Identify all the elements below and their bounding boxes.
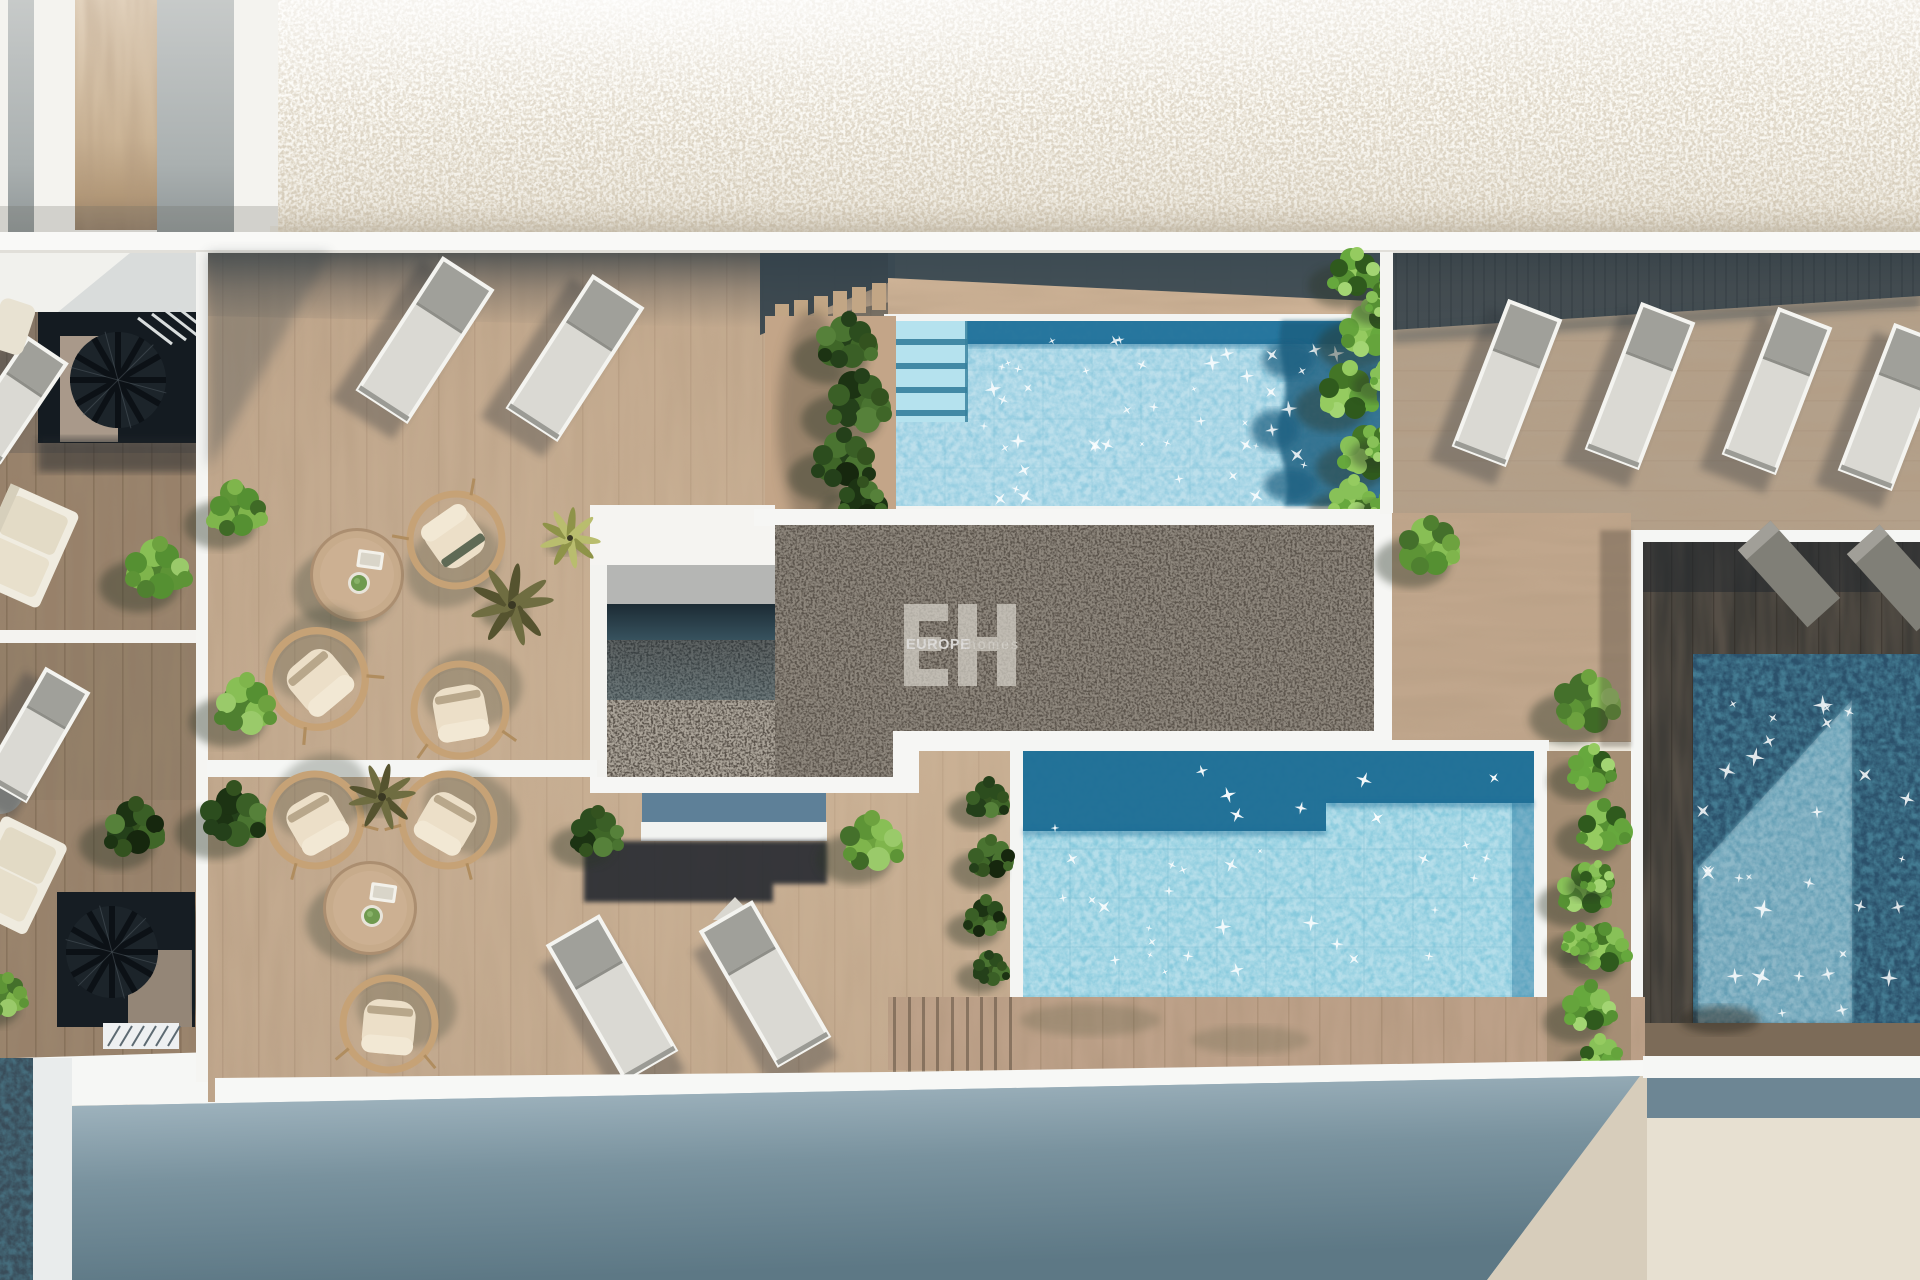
svg-text:homes: homes (968, 636, 1020, 652)
svg-text:EUROPE: EUROPE (906, 637, 970, 653)
